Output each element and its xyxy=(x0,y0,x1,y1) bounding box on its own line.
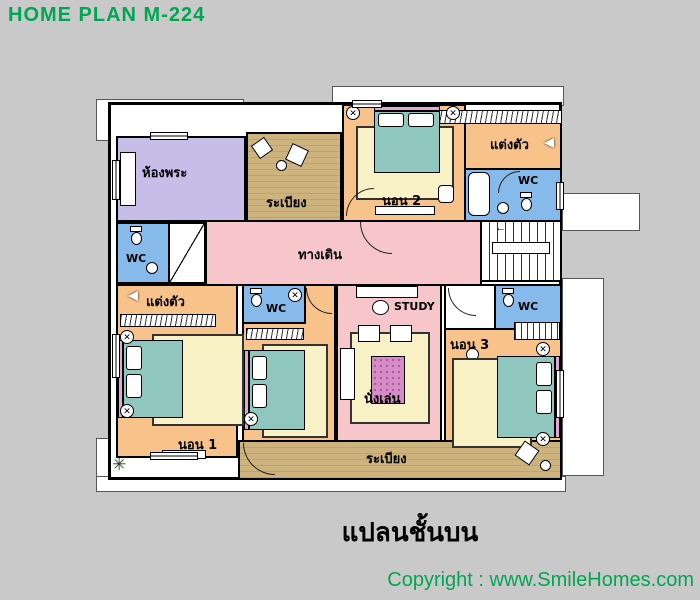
vent-fan-icon: ✕ xyxy=(288,288,302,302)
room-label-study: STUDY xyxy=(394,300,435,313)
room-label-corridor: ทางเดิน xyxy=(298,244,342,265)
room-label-bedroom1: นอน 1 xyxy=(178,434,217,455)
floor-plan-page: HOME PLAN M-224 แปลนชั้นบน Copyright : w… xyxy=(0,0,700,600)
ceiling-fan-icon: ✕ xyxy=(536,432,550,446)
ceiling-fan-icon: ✕ xyxy=(536,342,550,356)
pillow xyxy=(252,384,267,408)
window xyxy=(556,370,564,418)
study-desk xyxy=(356,286,418,298)
sofa-icon xyxy=(340,348,355,400)
window xyxy=(556,182,564,210)
pillow xyxy=(536,362,552,386)
ceiling-fan-icon: ✕ xyxy=(244,412,258,426)
room-label-bedroom3: นอน 3 xyxy=(450,334,489,355)
room-corridor xyxy=(205,220,482,286)
armchair-icon xyxy=(358,325,380,342)
room-label-wc-right: WC xyxy=(518,300,538,313)
ceiling-fan-icon: ✕ xyxy=(120,330,134,344)
plan-caption: แปลนชั้นบน xyxy=(300,512,520,553)
room-label-dressing-left: แต่งตัว xyxy=(146,291,185,312)
room-label-wc-top: WC xyxy=(518,174,538,187)
stair-arrow-icon: ← xyxy=(495,222,506,234)
room-label-prayer: ห้องพระ xyxy=(142,162,187,183)
wardrobe-top xyxy=(420,110,562,124)
wardrobe-bedroom1 xyxy=(120,314,216,327)
room-label-balcony-top: ระเบียง xyxy=(266,192,307,213)
sink-icon xyxy=(146,262,158,274)
study-chair-icon xyxy=(372,300,389,315)
wardrobe-bedroom-mid xyxy=(246,328,304,340)
ceiling-fan-icon: ✕ xyxy=(346,106,360,120)
window xyxy=(352,100,382,108)
armchair-icon xyxy=(390,325,412,342)
door-direction-icon xyxy=(128,291,138,301)
toilet-icon xyxy=(248,288,264,308)
jar-icon xyxy=(438,185,454,203)
bathtub-icon xyxy=(468,172,490,216)
door-direction-icon xyxy=(544,138,554,148)
table-icon xyxy=(540,460,551,471)
room-label-balcony-bottom: ระเบียง xyxy=(366,448,407,469)
ceiling-fan-icon: ✕ xyxy=(120,404,134,418)
altar-table xyxy=(120,152,136,206)
pillow xyxy=(536,390,552,414)
shower-stall xyxy=(168,222,206,284)
toilet-icon xyxy=(500,288,516,308)
window xyxy=(112,334,120,378)
toilet-icon xyxy=(128,226,144,246)
ceiling-fan-icon: ✕ xyxy=(446,106,460,120)
sink-icon xyxy=(497,202,509,214)
roof-eave-right-box xyxy=(562,193,640,231)
room-label-bedroom2: นอน 2 xyxy=(382,190,421,211)
pillow xyxy=(126,374,142,398)
page-title: HOME PLAN M-224 xyxy=(8,4,205,27)
stair-railing xyxy=(492,242,550,254)
pillow xyxy=(126,346,142,370)
room-label-wc-left: WC xyxy=(126,252,146,265)
wardrobe-bedroom3 xyxy=(514,322,560,340)
pillow xyxy=(378,113,404,127)
room-label-sitting: นั่งเล่น xyxy=(364,388,401,409)
pillow xyxy=(408,113,434,127)
pillow xyxy=(252,356,267,380)
copyright-text: Copyright : www.SmileHomes.com xyxy=(387,569,694,592)
toilet-icon xyxy=(518,192,534,212)
window xyxy=(150,132,188,140)
room-label-wc-mid: WC xyxy=(266,302,286,315)
plant-icon: ✳ xyxy=(112,456,126,473)
window xyxy=(112,160,120,200)
roof-eave-right xyxy=(562,278,604,476)
room-label-dressing-top: แต่งตัว xyxy=(490,134,529,155)
table-icon xyxy=(276,160,287,171)
